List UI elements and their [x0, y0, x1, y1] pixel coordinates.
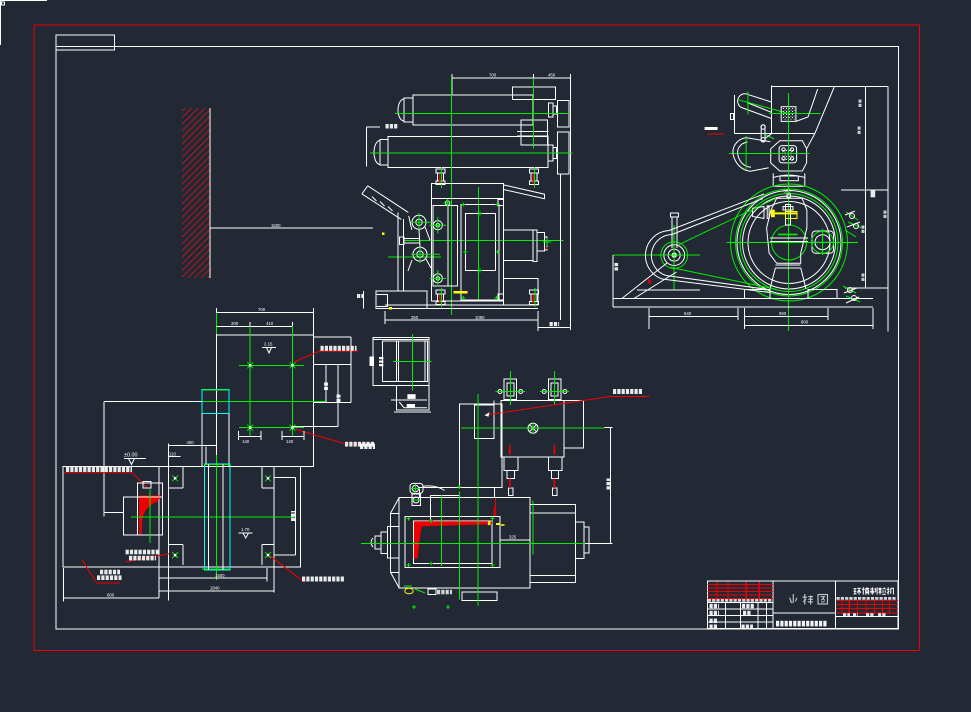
svg-text:400: 400	[187, 440, 195, 445]
svg-text:200: 200	[231, 321, 239, 326]
svg-text:1.70: 1.70	[241, 527, 250, 532]
svg-text:2.15: 2.15	[264, 342, 273, 347]
svg-text:350: 350	[411, 315, 419, 320]
svg-text:700: 700	[489, 73, 497, 78]
svg-text:1500: 1500	[271, 223, 281, 228]
svg-text:±0.00: ±0.00	[124, 453, 137, 459]
svg-text:640: 640	[684, 311, 692, 316]
svg-text:140: 140	[286, 439, 294, 444]
svg-text:410: 410	[266, 321, 274, 326]
svg-text:1500: 1500	[215, 573, 225, 578]
svg-text:325: 325	[509, 534, 517, 539]
svg-text:600: 600	[107, 593, 115, 598]
svg-text:140: 140	[242, 439, 250, 444]
svg-text:110: 110	[169, 452, 176, 457]
svg-text:800: 800	[801, 320, 809, 325]
svg-text:1840: 1840	[210, 586, 220, 591]
svg-text:450: 450	[548, 73, 556, 78]
svg-text:590: 590	[779, 311, 787, 316]
svg-text:700: 700	[258, 307, 266, 312]
svg-text:1060: 1060	[475, 315, 485, 320]
